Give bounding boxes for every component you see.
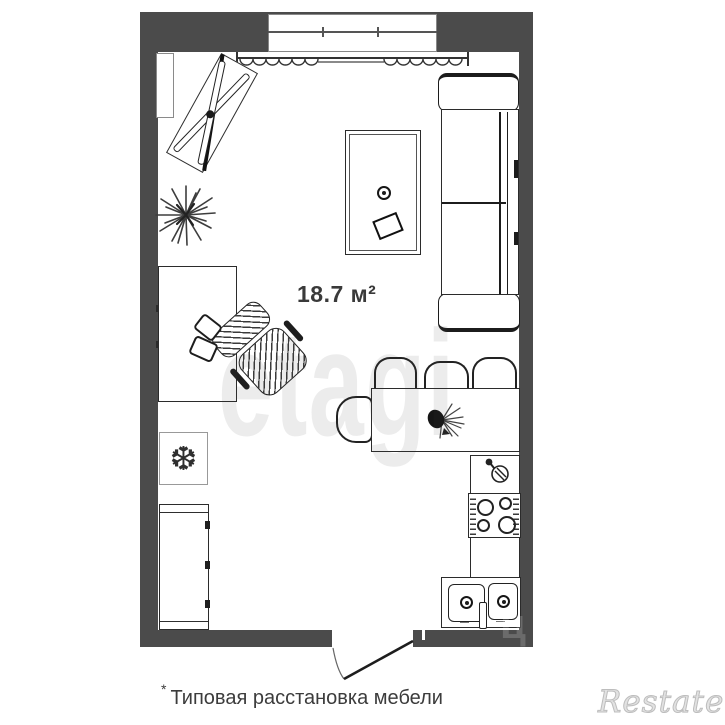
stove-hatch xyxy=(470,496,476,535)
window-frame-line xyxy=(268,31,437,33)
cabinet-bottom-line xyxy=(160,621,208,622)
drying-rack xyxy=(166,53,258,173)
window xyxy=(268,14,437,52)
sink-mark xyxy=(460,622,469,624)
caption-text: Типовая расстановка мебели xyxy=(170,687,443,709)
stove xyxy=(468,493,521,538)
cabinet-handle xyxy=(205,561,210,569)
sofa-backrest-line xyxy=(507,112,508,294)
sofa-seat-divider xyxy=(442,202,506,204)
wall-niche xyxy=(156,53,174,118)
sink-divider xyxy=(479,602,487,629)
window-pane-divider xyxy=(322,27,324,37)
gas-valve-icon xyxy=(482,455,512,485)
stove-burner xyxy=(477,519,490,532)
freezer-snowflake-icon: ❆ xyxy=(170,442,198,475)
sofa-body xyxy=(441,109,519,295)
watermark-etagi: etagi xyxy=(218,308,456,458)
cabinet-handle xyxy=(205,600,210,608)
sofa-backrest-line xyxy=(499,112,501,294)
sofa-armrest-top xyxy=(438,73,519,112)
sofa-notch xyxy=(514,232,518,245)
caption: *Типовая расстановка мебели xyxy=(161,681,443,710)
cabinet xyxy=(159,504,209,630)
wall-bottom-left xyxy=(140,630,332,647)
caption-asterisk: * xyxy=(161,681,166,697)
window-pane-divider xyxy=(377,27,379,37)
watermark-cian: циан xyxy=(500,600,620,648)
decor-circle xyxy=(377,186,391,200)
stove-burner xyxy=(477,499,494,516)
cabinet-top-line xyxy=(160,512,208,513)
cabinet-handle xyxy=(205,521,210,529)
wall-right xyxy=(519,12,533,647)
door-swing xyxy=(325,628,425,688)
watermark-restate: Restate xyxy=(598,684,724,720)
floor-plan: etagi xyxy=(0,0,725,725)
stove-burner xyxy=(499,497,512,510)
fridge: ❆ xyxy=(159,432,208,485)
plant-icon xyxy=(152,182,222,250)
stove-burner xyxy=(498,516,516,534)
sofa-notch xyxy=(514,160,518,178)
